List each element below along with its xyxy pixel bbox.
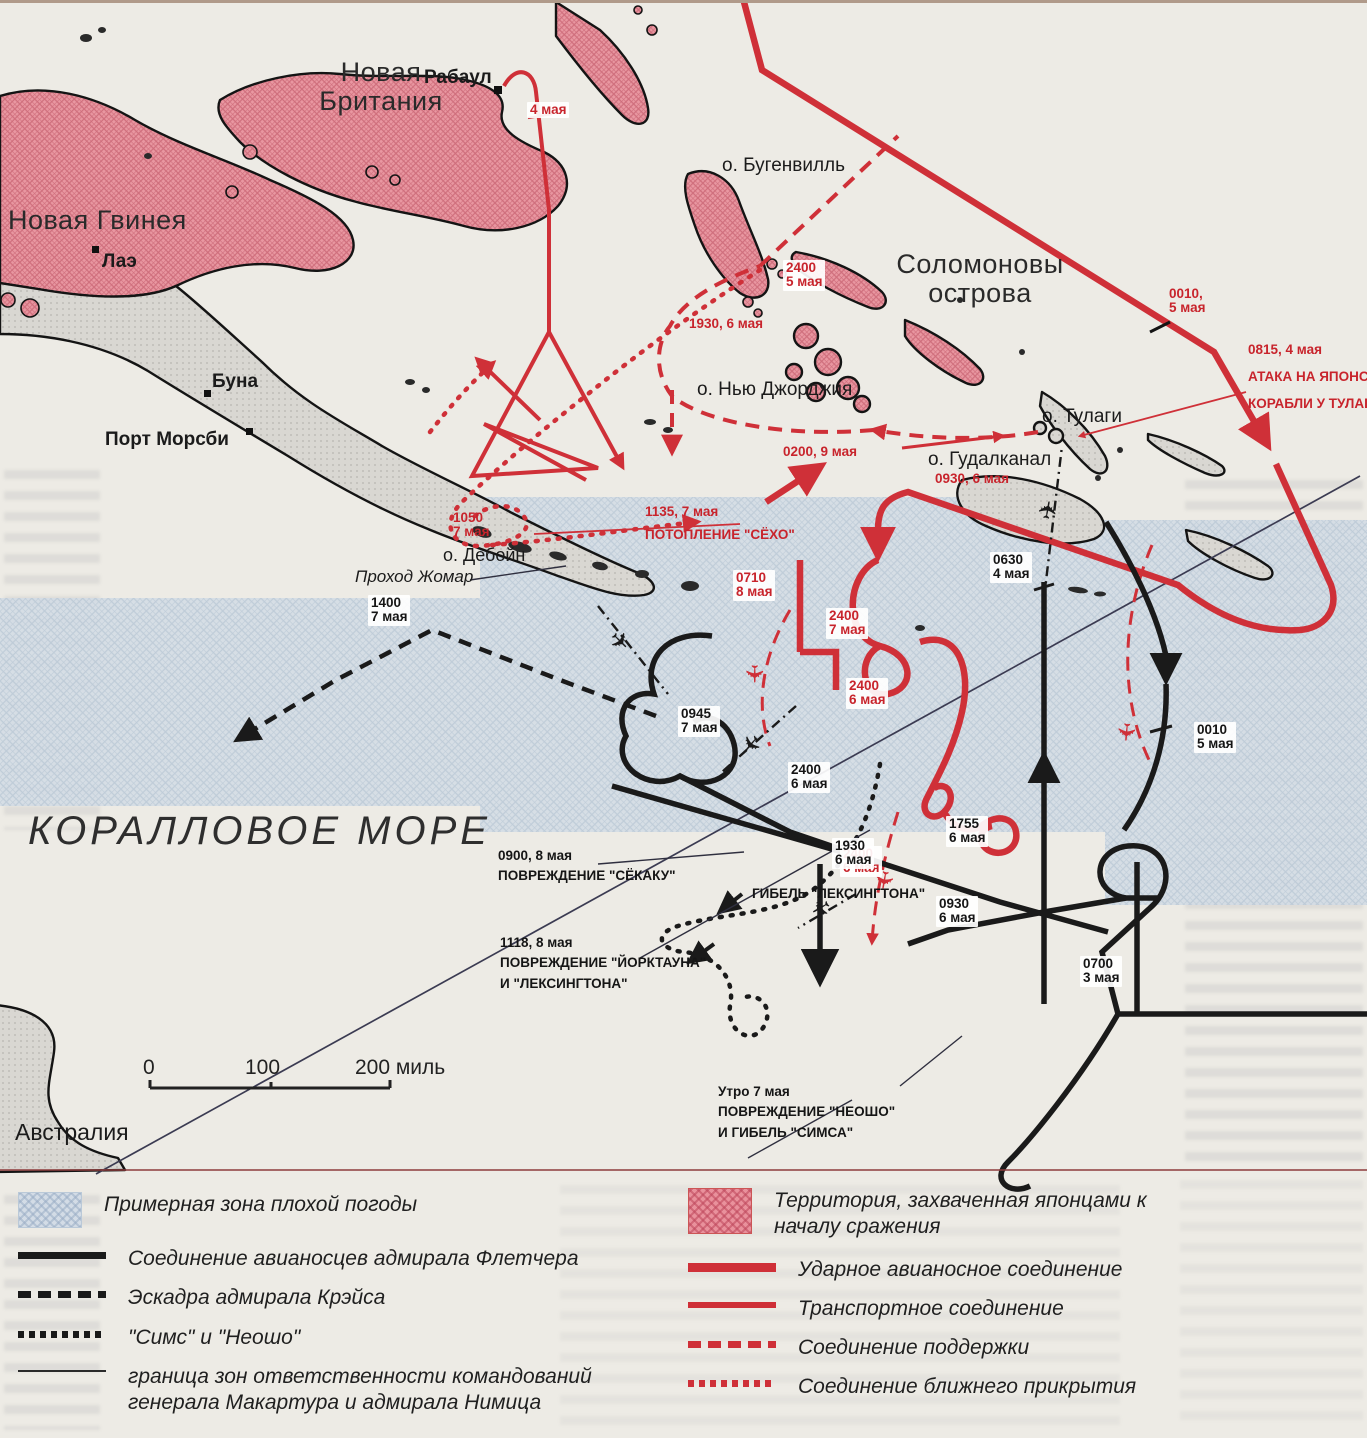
time-1930-6-may-black: 1930 6 мая [832, 838, 874, 869]
black-dotted-line-icon [18, 1331, 106, 1338]
svg-text:✈: ✈ [1111, 721, 1141, 743]
label-buna: Буна [212, 372, 258, 392]
time-0630-4-may: 0630 4 мая [990, 552, 1032, 583]
label-port-moresby: Порт Морсби [105, 430, 229, 450]
page-top-edge [0, 0, 1367, 3]
annotation-neosho-sims: Утро 7 мая ПОВРЕЖДЕНИЕ "НЕОШО" И ГИБЕЛЬ … [718, 1082, 895, 1143]
time-0930-6-may-red: 0930, 6 мая [932, 471, 1012, 487]
legend-item-strike-force: Ударное авианосное соединение [688, 1257, 1208, 1283]
annotation-yorktown-damage: 1118, 8 мая ПОВРЕЖДЕНИЕ "ЙОРКТАУНА" И "Л… [500, 933, 706, 994]
time-1755-6-may: 1755 6 мая [946, 816, 988, 847]
legend-item-fletcher: Соединение авианосцев адмирала Флетчера [18, 1246, 638, 1272]
scale-200: 200 миль [355, 1056, 445, 1080]
time-0710-8-may: 0710 8 мая [733, 570, 775, 601]
red-dotted-line-icon [688, 1380, 776, 1387]
label-australia: Австралия [15, 1120, 129, 1144]
legend-allied: Примерная зона плохой погоды Соединение … [18, 1192, 638, 1429]
label-lae: Лаэ [102, 252, 137, 272]
time-0200-9-may: 0200, 9 мая [780, 444, 860, 460]
scale-0: 0 [143, 1056, 155, 1080]
scale-100: 100 [245, 1056, 280, 1080]
time-0010-5-may-black: 0010 5 мая [1194, 722, 1236, 753]
legend-item-territory: Территория, захваченная японцами к начал… [688, 1188, 1208, 1241]
label-new-georgia: о. Нью Джорджия [697, 380, 852, 400]
red-medium-line-icon [688, 1302, 776, 1308]
thin-line-icon [18, 1370, 106, 1372]
land-new-guinea-south [0, 283, 654, 596]
land-australia [0, 1005, 125, 1172]
red-thick-line-icon [688, 1263, 776, 1272]
legend-item-boundary: граница зон ответственности командований… [18, 1364, 638, 1417]
svg-text:✈: ✈ [740, 664, 768, 684]
annotation-lexington-loss: ГИБЕЛЬ "ЛЕКСИНГТОНА" [752, 884, 925, 904]
label-bougainville: о. Бугенвилль [722, 156, 845, 176]
time-2400-7-may-red: 2400 7 мая [826, 608, 868, 639]
legend-item-transport-force: Транспортное соединение [688, 1296, 1208, 1322]
time-0945-7-may: 0945 7 мая [678, 706, 720, 737]
legend-item-crace: Эскадра адмирала Крэйса [18, 1285, 638, 1311]
weather-zone-swatch-icon [18, 1192, 82, 1228]
annotation-tulagi-attack: 0815, 4 мая АТАКА НА ЯПОНСКИЕ КОРАБЛИ У … [1248, 336, 1367, 417]
land-santa-isabel [905, 320, 983, 385]
red-dashed-line-icon [688, 1341, 776, 1348]
label-solomon-islands: Соломоновы острова [880, 250, 1080, 307]
time-2400-6-may-black: 2400 6 мая [788, 762, 830, 793]
coral-sea-battle-map: ✈ ✈ ✈ ✈ ✈ ✈ ✈ [0, 0, 1367, 1438]
label-rabaul: Рабаул [424, 68, 492, 88]
land-new-ireland [556, 2, 648, 124]
time-2400-6-may-red-a: 2400 6 мая [846, 678, 888, 709]
legend-japanese: Территория, захваченная японцами к начал… [688, 1188, 1208, 1414]
label-coral-sea: КОРАЛЛОВОЕ МОРЕ [28, 810, 491, 852]
legend-item-weather: Примерная зона плохой погоды [18, 1192, 638, 1228]
legend-item-support-force: Соединение поддержки [688, 1335, 1208, 1361]
legend-item-close-cover: Соединение ближнего прикрытия [688, 1374, 1208, 1400]
label-tulagi: о. Тулаги [1042, 407, 1122, 427]
black-thick-line-icon [18, 1252, 106, 1259]
label-guadalcanal: о. Гудалканал [928, 450, 1051, 470]
time-4-may: 4 мая [527, 102, 569, 118]
label-new-guinea: Новая Гвинея [8, 206, 187, 235]
black-dashed-line-icon [18, 1291, 106, 1298]
time-2400-5-may-red: 2400 5 мая [783, 260, 825, 291]
time-0010-5-may-red: 0010, 5 мая [1166, 286, 1208, 317]
annotation-shoho-sinking: 1135, 7 мая ПОТОПЛЕНИЕ "СЁХО" [645, 501, 795, 547]
time-1930-6-may-red: 1930, 6 мая [686, 316, 766, 332]
annotation-shokaku-damage: 0900, 8 мая ПОВРЕЖДЕНИЕ "СЁКАКУ" [498, 846, 676, 887]
time-1050-7-may: 1050 7 мая [450, 510, 492, 541]
label-jomard-passage: Проход Жомар [355, 568, 473, 586]
label-deboyne: о. Дебойн [443, 546, 525, 565]
scale-bar [150, 1080, 390, 1088]
time-0930-6-may-black: 0930 6 мая [936, 896, 978, 927]
time-0700-3-may: 0700 3 мая [1080, 956, 1122, 987]
land-maramasike [1148, 434, 1224, 475]
legend-item-sims-neosho: "Симс" и "Неошо" [18, 1325, 638, 1351]
time-1400-7-may: 1400 7 мая [368, 595, 410, 626]
japanese-territory-swatch-icon [688, 1188, 752, 1234]
